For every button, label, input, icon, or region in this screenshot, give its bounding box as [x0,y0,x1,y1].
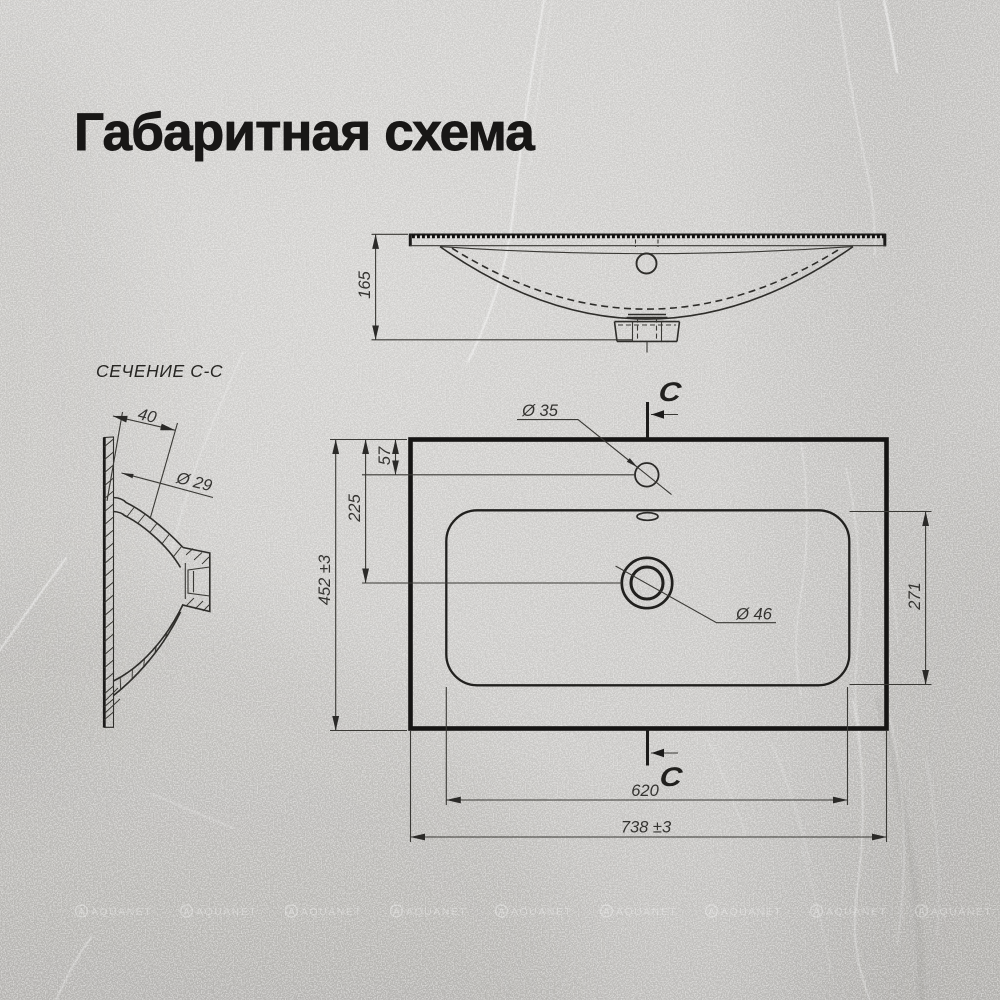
svg-text:C: C [657,378,683,408]
svg-text:Габаритная схема: Габаритная схема [74,103,535,162]
svg-text:A: A [78,907,85,917]
svg-text:A: A [603,907,610,917]
svg-text:620: 620 [631,782,659,800]
svg-text:A: A [183,907,190,917]
svg-text:AQUANET: AQUANET [721,906,782,918]
svg-text:452 ±3: 452 ±3 [316,554,334,605]
svg-text:A: A [288,907,295,917]
svg-text:A: A [498,907,505,917]
svg-text:Ø 46: Ø 46 [735,606,773,624]
svg-text:AQUANET: AQUANET [616,906,677,918]
svg-text:A: A [393,907,400,917]
svg-text:AQUANET: AQUANET [406,906,467,918]
svg-text:A: A [708,907,715,917]
svg-text:165: 165 [356,270,374,298]
svg-text:225: 225 [346,493,364,522]
svg-text:AQUANET: AQUANET [931,906,992,918]
svg-text:C: C [658,763,684,793]
svg-text:738 ±3: 738 ±3 [621,819,672,837]
svg-text:Ø 35: Ø 35 [521,402,559,420]
svg-text:AQUANET: AQUANET [301,906,362,918]
svg-text:AQUANET: AQUANET [196,906,257,918]
svg-text:СЕЧЕНИЕ С-С: СЕЧЕНИЕ С-С [96,361,223,381]
svg-text:AQUANET: AQUANET [826,906,887,918]
svg-text:AQUANET: AQUANET [511,906,572,918]
svg-text:A: A [918,907,925,917]
svg-text:57: 57 [376,446,394,465]
svg-text:271: 271 [906,582,924,611]
svg-text:A: A [813,907,820,917]
svg-text:AQUANET: AQUANET [91,906,152,918]
